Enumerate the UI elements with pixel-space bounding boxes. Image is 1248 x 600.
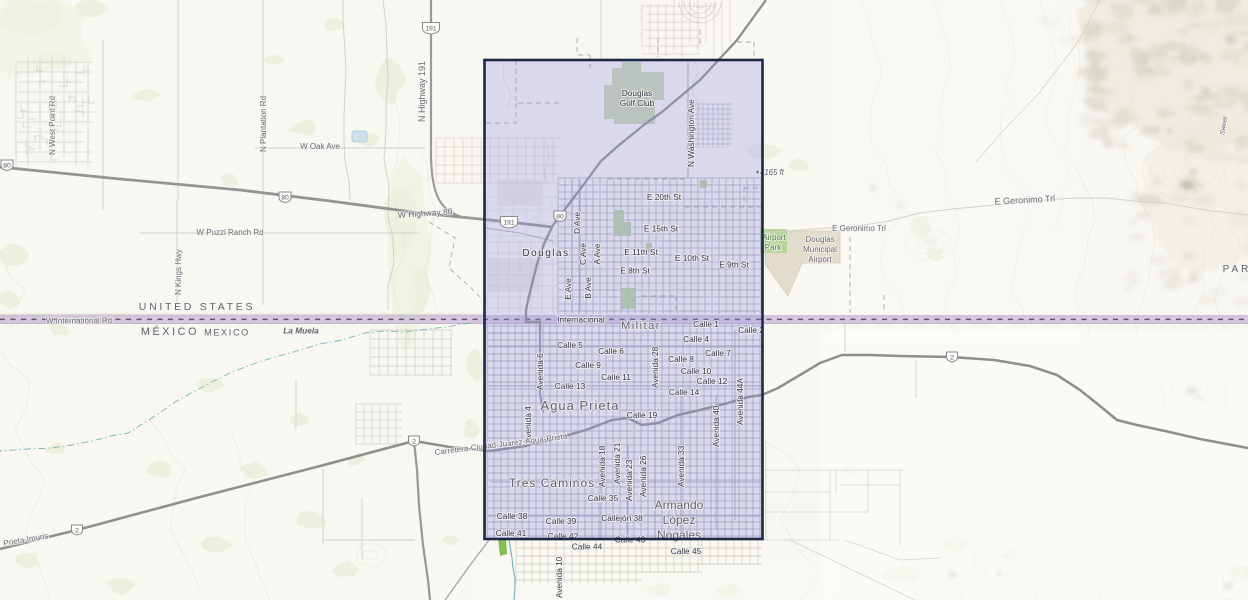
svg-text:Avenida 40: Avenida 40 [711,405,721,447]
svg-text:N Plantation Rd: N Plantation Rd [259,96,268,152]
svg-text:Avenida 26: Avenida 26 [638,455,648,497]
svg-text:D Ave: D Ave [572,212,582,234]
svg-text:Calle 9: Calle 9 [575,360,601,370]
svg-text:W Puzzi Ranch Rd: W Puzzi Ranch Rd [196,228,263,237]
svg-text:Calle 45: Calle 45 [671,546,702,556]
svg-text:Calle 1: Calle 1 [693,319,719,329]
svg-text:Calle 19: Calle 19 [627,410,658,420]
svg-text:Avenida 44A: Avenida 44A [735,378,745,425]
svg-text:La Muela: La Muela [283,326,319,336]
svg-text:UNITED STATES: UNITED STATES [139,301,255,313]
svg-text:W Oak Ave: W Oak Ave [300,142,340,151]
svg-text:Avenida 21: Avenida 21 [612,442,622,484]
svg-text:MEXICO: MEXICO [204,328,250,338]
svg-text:E Ave: E Ave [563,278,573,300]
svg-text:80: 80 [3,162,11,169]
svg-text:2: 2 [950,354,954,361]
svg-text:A Ave: A Ave [592,243,602,264]
svg-text:Internacional: Internacional [557,315,605,325]
svg-text:López: López [663,513,696,527]
svg-text:2: 2 [75,527,79,534]
svg-text:N West Point Rd: N West Point Rd [48,96,57,155]
svg-text:80: 80 [281,194,289,201]
svg-text:80: 80 [556,213,564,220]
svg-text:Calle 4: Calle 4 [683,334,709,344]
svg-text:191: 191 [425,26,436,33]
svg-text:Calle 10: Calle 10 [681,366,712,376]
svg-text:Tres Caminos: Tres Caminos [509,476,595,490]
svg-text:Calle 7: Calle 7 [705,348,731,358]
svg-text:Avenida 28: Avenida 28 [650,346,660,388]
svg-text:Calle 8: Calle 8 [668,354,694,364]
svg-text:Calle 39: Calle 39 [546,516,577,526]
svg-text:E 8th St: E 8th St [620,266,650,276]
svg-text:Calle 13: Calle 13 [555,381,586,391]
svg-text:2: 2 [412,438,416,445]
svg-text:Golf Club: Golf Club [620,98,655,108]
svg-text:Airport: Airport [808,255,832,264]
svg-text:N Washington Ave: N Washington Ave [686,99,696,167]
svg-text:Calle 44: Calle 44 [572,542,603,552]
svg-text:Calle 41: Calle 41 [496,528,527,538]
svg-text:Militar: Militar [621,320,661,332]
svg-text:Callejón 38: Callejón 38 [601,513,643,523]
svg-text:E 10th St: E 10th St [675,253,710,263]
svg-text:Agua Prieta: Agua Prieta [541,398,620,413]
svg-text:Douglas: Douglas [522,248,569,259]
svg-text:C Ave: C Ave [578,243,588,265]
svg-text:Avenida 18: Avenida 18 [597,445,607,487]
svg-text:B Ave: B Ave [583,277,593,299]
svg-text:Douglas: Douglas [805,235,834,244]
svg-text:Douglas: Douglas [622,88,652,98]
svg-text:E Geronimo Trl: E Geronimo Trl [832,224,886,233]
svg-text:Armando: Armando [655,498,704,512]
svg-text:N Highway 191: N Highway 191 [417,61,427,122]
svg-text:E 11th St: E 11th St [624,247,658,257]
svg-text:191: 191 [503,220,514,227]
svg-text:Calle 35: Calle 35 [588,493,619,503]
svg-text:Airport: Airport [762,233,786,242]
svg-text:E 15th St: E 15th St [644,224,679,234]
svg-text:Avenida 23: Avenida 23 [624,459,634,501]
svg-text:Calle 5: Calle 5 [557,340,583,350]
svg-text:Avenida 10: Avenida 10 [554,556,564,598]
svg-text:Calle 38: Calle 38 [497,511,528,521]
svg-text:Avenida 33: Avenida 33 [676,445,686,487]
svg-text:E 20th St: E 20th St [647,192,682,202]
svg-text:Calle 11: Calle 11 [601,372,631,382]
svg-text:PAR: PAR [1223,264,1248,275]
svg-text:Municipal: Municipal [803,245,837,254]
svg-text:Calle 14: Calle 14 [669,387,700,397]
svg-text:MÉXICO: MÉXICO [141,325,199,338]
svg-text:Park: Park [765,243,782,252]
svg-text:Calle 2: Calle 2 [738,325,764,335]
svg-text:N Kings Hwy: N Kings Hwy [174,249,183,295]
svg-text:Calle 12: Calle 12 [697,376,728,386]
svg-text:E 9th St: E 9th St [719,260,749,270]
svg-text:Avenida 6: Avenida 6 [535,353,545,390]
svg-text:W International Rd: W International Rd [46,317,112,326]
svg-text:Calle 6: Calle 6 [598,346,624,356]
